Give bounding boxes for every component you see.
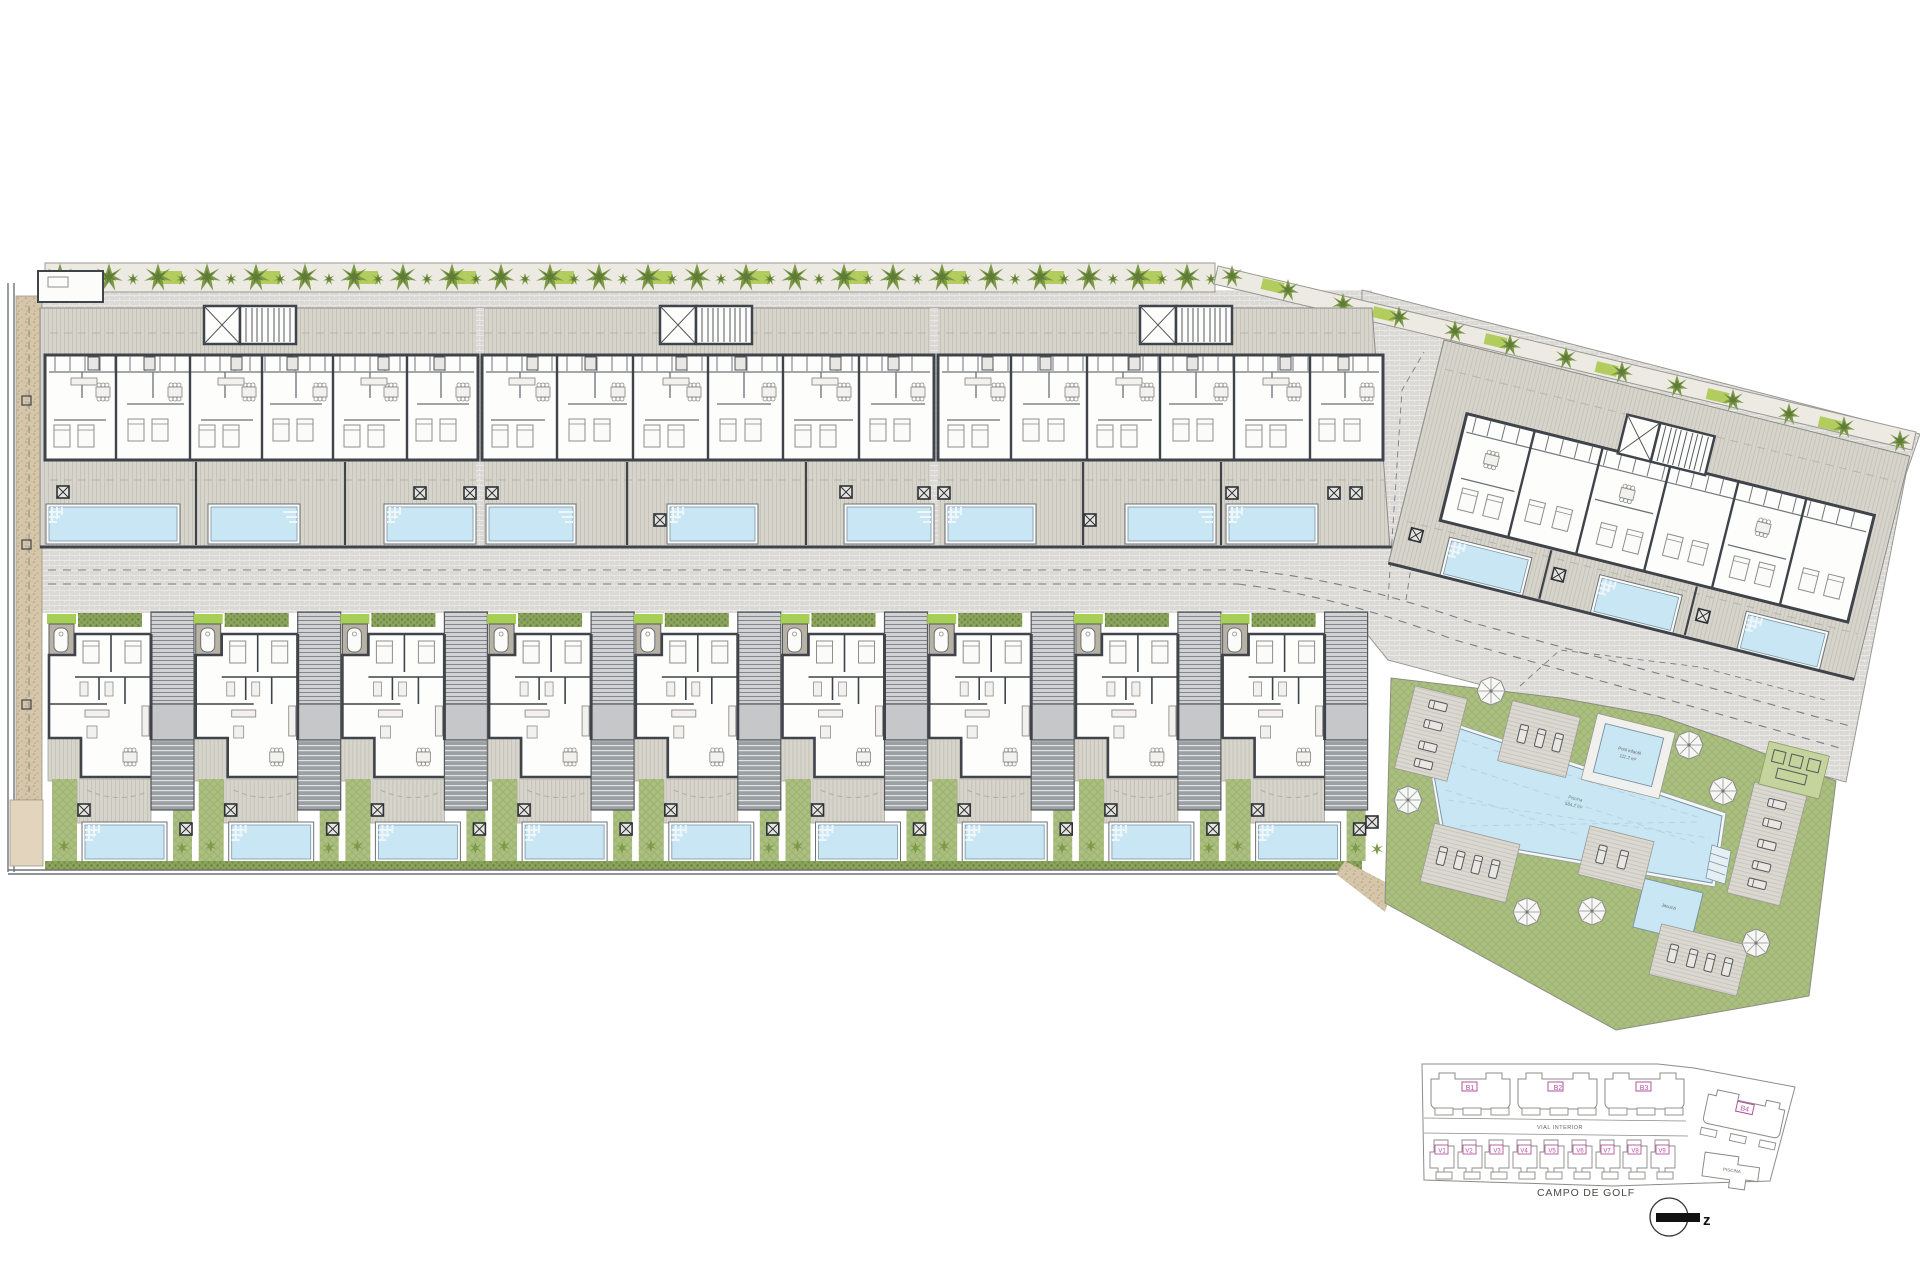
svg-text:V9: V9 [1658,1149,1666,1155]
svg-text:B2: B2 [1554,1085,1563,1092]
svg-text:V5: V5 [1548,1149,1556,1155]
svg-text:V7: V7 [1603,1149,1611,1155]
svg-text:z: z [1703,1212,1711,1229]
svg-text:V8: V8 [1631,1149,1639,1155]
svg-text:B3: B3 [1640,1085,1649,1092]
svg-text:V2: V2 [1465,1149,1473,1155]
svg-text:V1: V1 [1438,1149,1446,1155]
svg-text:V4: V4 [1520,1149,1528,1155]
svg-text:B1: B1 [1466,1085,1475,1092]
svg-text:VIAL INTERIOR: VIAL INTERIOR [1537,1125,1583,1131]
svg-text:V6: V6 [1576,1149,1584,1155]
svg-text:V3: V3 [1493,1149,1501,1155]
svg-text:CAMPO DE GOLF: CAMPO DE GOLF [1537,1187,1635,1199]
